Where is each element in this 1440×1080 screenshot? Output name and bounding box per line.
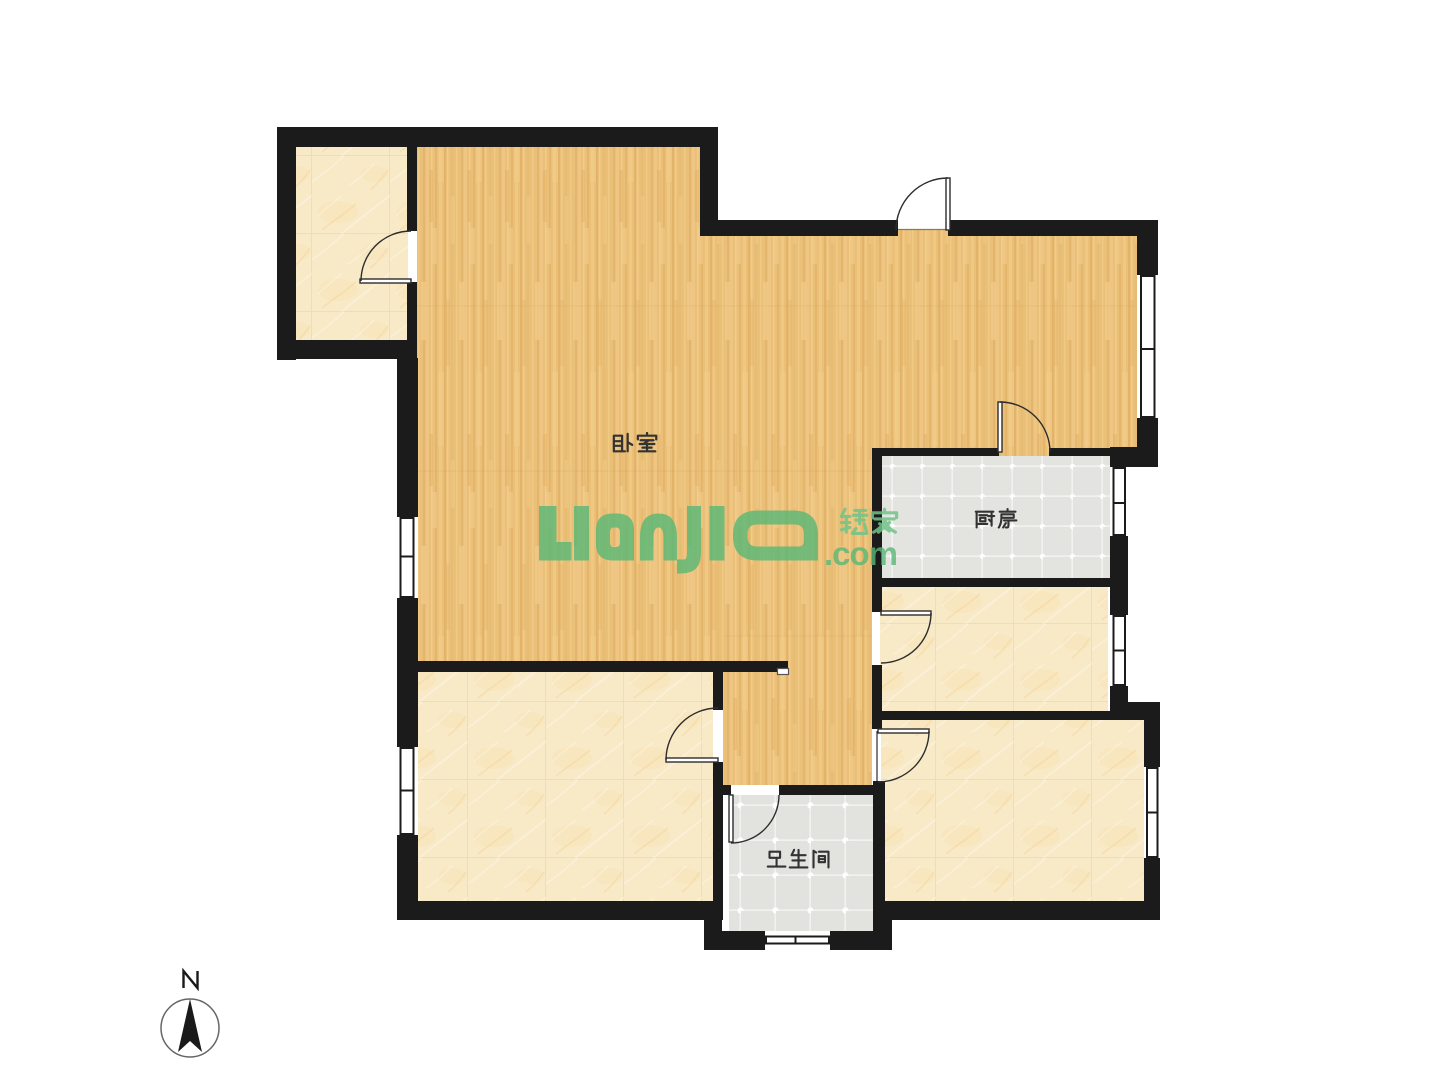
- svg-text:.com: .com: [824, 535, 897, 572]
